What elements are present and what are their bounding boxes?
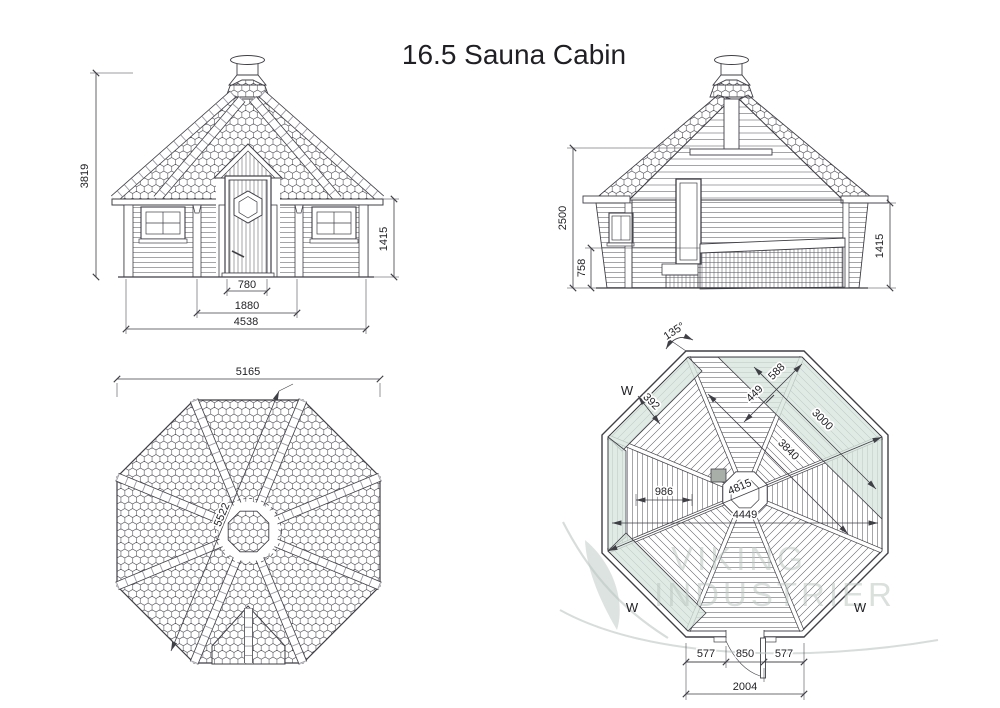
window-right xyxy=(310,207,358,243)
svg-text:758: 758 xyxy=(576,259,588,277)
floor-plan-view: VIKING INDUSTRIER 4449 4815 986 3840 300… xyxy=(560,320,938,700)
page-title: 16.5 Sauna Cabin xyxy=(402,39,626,70)
svg-text:4538: 4538 xyxy=(234,316,258,328)
wall-post-right xyxy=(295,205,303,277)
corner-angle-label: 135° xyxy=(662,320,688,342)
side-window xyxy=(607,213,634,246)
svg-text:986: 986 xyxy=(655,486,673,498)
svg-text:850: 850 xyxy=(736,648,754,660)
corner-angle: 135° xyxy=(662,320,693,351)
drawing-canvas: 16.5 Sauna Cabin xyxy=(0,0,1000,708)
corner-board-right xyxy=(359,205,368,277)
chimney xyxy=(226,56,269,98)
dim-plan-entrance-wall: 2004 xyxy=(686,681,804,694)
chimney-cap xyxy=(231,56,265,65)
front-elevation-view: 3819 1415 780 1880 4538 xyxy=(79,56,399,335)
window-mark-lower-right: W xyxy=(854,600,867,615)
svg-text:1415: 1415 xyxy=(378,227,390,251)
svg-text:577: 577 xyxy=(775,648,793,660)
sauna-bench xyxy=(700,238,845,289)
dim-front-wall-height: 1415 xyxy=(370,199,399,277)
chimney-flue xyxy=(724,99,739,149)
window-left xyxy=(139,207,187,243)
svg-text:5165: 5165 xyxy=(236,366,260,378)
wall-post-left xyxy=(193,205,201,277)
svg-text:1880: 1880 xyxy=(235,300,259,312)
svg-text:2500: 2500 xyxy=(557,206,569,230)
bench-left xyxy=(608,437,626,551)
cross-section-view: 2500 758 1415 xyxy=(557,56,896,290)
svg-text:780: 780 xyxy=(238,279,256,291)
dim-roof-width: 5165 xyxy=(117,366,380,397)
bench-steps xyxy=(662,264,698,288)
chimney xyxy=(710,56,753,98)
eaves-fascia-left xyxy=(583,196,630,203)
window-sill xyxy=(607,243,634,246)
window-sill xyxy=(139,239,187,243)
svg-text:577: 577 xyxy=(697,648,715,660)
corner-board-left xyxy=(124,205,133,277)
watermark-text: VIKING xyxy=(671,540,807,577)
roof-plan-view: 5165 5522 xyxy=(117,366,380,664)
door-leaf xyxy=(761,638,766,678)
window-sill xyxy=(310,239,358,243)
chimney-cap xyxy=(715,56,749,65)
ceiling-platform xyxy=(690,149,772,155)
stove xyxy=(711,469,726,482)
svg-text:3819: 3819 xyxy=(79,164,91,188)
eaves-fascia-right xyxy=(841,196,888,203)
dim-front-door-width: 780 xyxy=(227,279,267,296)
interior-door-opening xyxy=(676,179,701,264)
window-mark-lower-left: W xyxy=(626,600,639,615)
window-mark-upper-left: W xyxy=(621,383,634,398)
svg-text:1415: 1415 xyxy=(874,234,886,258)
bench-slats xyxy=(700,247,845,289)
svg-text:4449: 4449 xyxy=(733,509,757,521)
drawing-page: 16.5 Sauna Cabin xyxy=(0,0,1000,708)
door-jamb xyxy=(714,637,726,642)
svg-text:2004: 2004 xyxy=(733,681,757,693)
